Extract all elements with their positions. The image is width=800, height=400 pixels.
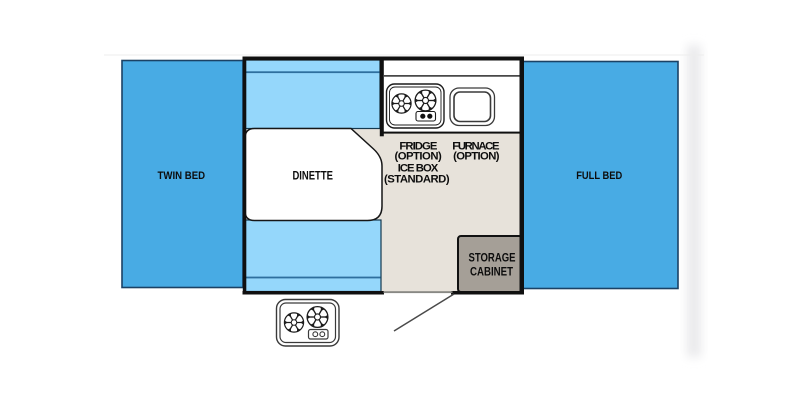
svg-text:(STANDARD): (STANDARD) — [384, 173, 450, 185]
svg-text:(OPTION): (OPTION) — [394, 150, 442, 162]
svg-text:(OPTION): (OPTION) — [453, 150, 500, 162]
svg-text:DINETTE: DINETTE — [292, 170, 333, 182]
svg-text:CABINET: CABINET — [470, 266, 513, 278]
svg-text:STORAGE: STORAGE — [469, 252, 516, 264]
svg-text:FULL BED: FULL BED — [576, 170, 622, 182]
svg-text:TWIN BED: TWIN BED — [158, 170, 206, 182]
